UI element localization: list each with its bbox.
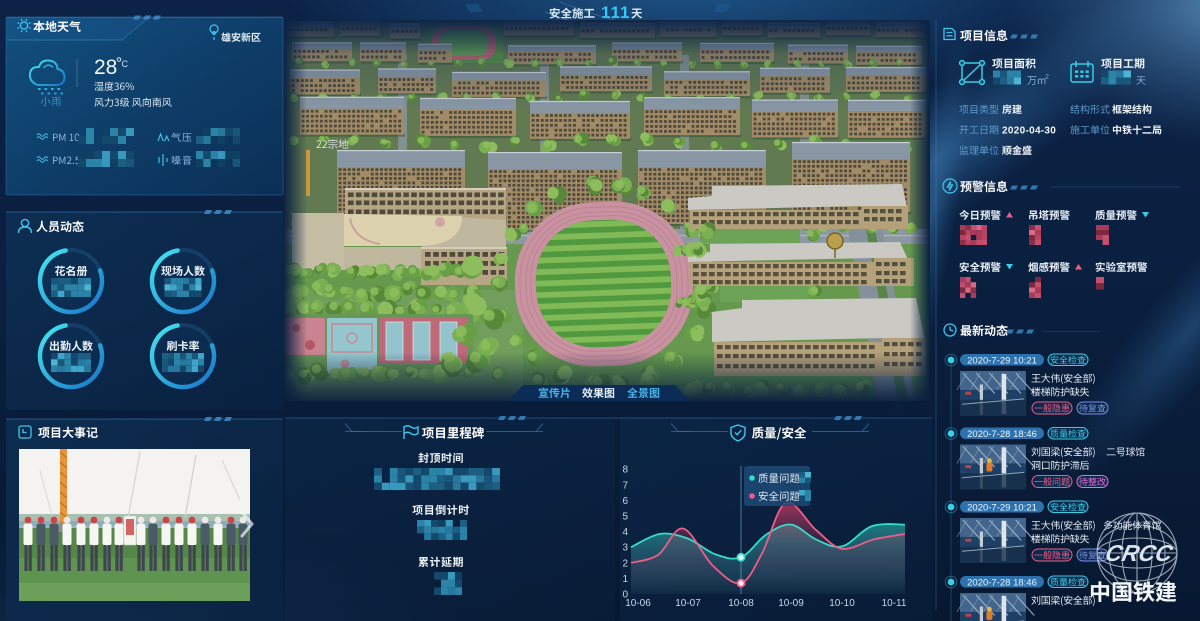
svg-text:10-07: 10-07 xyxy=(675,598,701,609)
svg-text:111: 111 xyxy=(601,3,631,22)
svg-text:28: 28 xyxy=(94,56,117,79)
svg-text:2020-7-29 10:21: 2020-7-29 10:21 xyxy=(967,502,1037,513)
svg-text:10-08: 10-08 xyxy=(728,598,754,609)
svg-text:2: 2 xyxy=(622,558,628,569)
svg-text:5: 5 xyxy=(622,512,628,523)
svg-text:2020-7-29 10:21: 2020-7-29 10:21 xyxy=(967,355,1037,366)
svg-text:2020-7-28 18:46: 2020-7-28 18:46 xyxy=(967,429,1037,440)
svg-text:10-09: 10-09 xyxy=(778,598,804,609)
svg-text:10-06: 10-06 xyxy=(625,598,651,609)
svg-text:10-10: 10-10 xyxy=(829,598,855,609)
svg-text:3: 3 xyxy=(622,543,628,554)
svg-text:C: C xyxy=(122,59,129,69)
svg-text:CRCC: CRCC xyxy=(1103,540,1177,566)
svg-text:10-11: 10-11 xyxy=(882,598,907,609)
svg-text:8: 8 xyxy=(622,465,628,476)
svg-text:1: 1 xyxy=(622,574,628,585)
svg-text:2: 2 xyxy=(1045,74,1049,81)
svg-text:6: 6 xyxy=(622,496,628,507)
svg-text:4: 4 xyxy=(622,527,628,538)
svg-text:2020-04-30: 2020-04-30 xyxy=(1002,126,1056,137)
svg-text:2020-7-28 18:46: 2020-7-28 18:46 xyxy=(967,577,1037,588)
svg-text:7: 7 xyxy=(622,480,628,491)
